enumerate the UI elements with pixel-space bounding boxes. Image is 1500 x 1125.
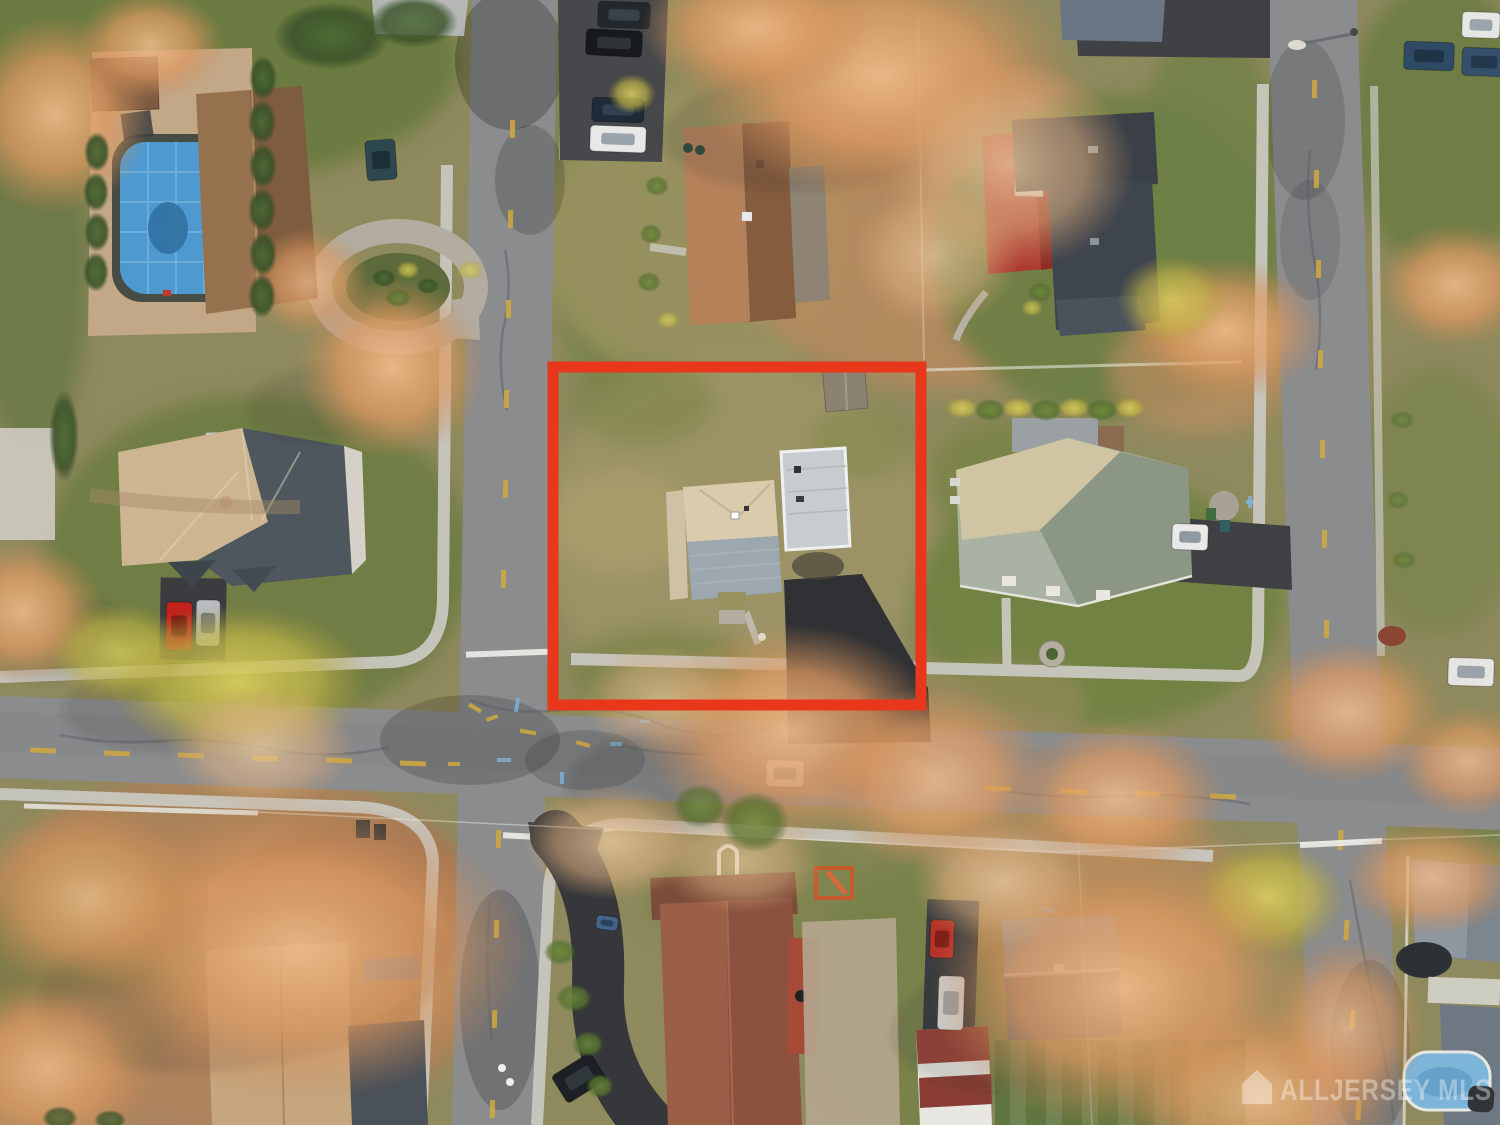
- yellow-road-marking: [503, 480, 508, 498]
- yellow-road-marking: [496, 830, 501, 848]
- tree-canopy: [1392, 551, 1416, 569]
- tree-canopy: [84, 212, 110, 252]
- yellow-road-marking: [1316, 260, 1321, 278]
- chimney: [731, 512, 739, 519]
- tree-canopy: [456, 260, 484, 280]
- mailbox: [498, 1064, 506, 1072]
- tree-canopy: [1114, 397, 1146, 419]
- tree-canopy: [645, 176, 669, 196]
- tree-canopy: [1021, 299, 1043, 317]
- neighbor-patio-left-edge: [0, 428, 55, 540]
- suv-dark-green-glass: [371, 151, 390, 170]
- suv-dark-green: [365, 139, 398, 181]
- tree-canopy: [84, 132, 110, 172]
- van-dark-glass: [608, 9, 640, 22]
- street-lamp-head: [1288, 40, 1306, 50]
- roof-vent: [744, 506, 749, 511]
- green-bin: [1206, 508, 1216, 520]
- neighbor-roof-partial: [1060, 0, 1165, 42]
- tree-canopy: [1390, 411, 1414, 429]
- tree-canopy: [248, 188, 276, 232]
- yellow-road-marking: [510, 120, 515, 138]
- aerial-photo: ALLJERSEY MLS: [0, 0, 1500, 1125]
- tree-canopy: [248, 274, 276, 318]
- car-black-glass: [597, 36, 631, 49]
- utility-pole: [1350, 28, 1358, 36]
- tree-canopy: [417, 278, 439, 294]
- car-black: [585, 29, 642, 58]
- tree-canopy: [1057, 397, 1091, 419]
- tree-canopy: [637, 272, 661, 292]
- truck-blue-1: [1404, 41, 1455, 71]
- tree-canopy: [385, 289, 411, 307]
- ground-patch: [570, 360, 714, 444]
- tree-canopy: [656, 311, 680, 329]
- tree-canopy: [640, 224, 662, 244]
- tree-canopy: [49, 390, 79, 482]
- tree-canopy: [586, 1074, 614, 1098]
- green-bin: [1220, 520, 1230, 532]
- tree-canopy: [556, 984, 592, 1012]
- yellow-road-marking: [490, 1100, 495, 1118]
- car-white-right-edge: [1448, 657, 1495, 687]
- rooftop-hvac: [742, 212, 752, 221]
- car-white-driveway-glass: [1179, 531, 1201, 543]
- white-flat-roof-addition: [781, 448, 850, 550]
- tree-canopy: [372, 269, 396, 287]
- yellow-road-marking: [501, 570, 506, 588]
- front-walk-right-center: [1006, 598, 1007, 668]
- hvac-unit: [950, 478, 960, 486]
- tree-canopy: [48, 602, 188, 702]
- tree-canopy: [1086, 399, 1118, 421]
- yellow-road-marking: [104, 751, 130, 757]
- yellow-road-marking: [1314, 170, 1319, 188]
- roof-sunlit-side: [660, 901, 730, 1125]
- car-white-glass: [601, 133, 635, 146]
- flat-roof-vent: [794, 466, 801, 473]
- pool-toy: [163, 290, 171, 296]
- truck-blue-1-glass: [1414, 49, 1444, 62]
- front-walk-top-center: [650, 247, 686, 252]
- porch-steps: [719, 610, 745, 624]
- blue-road-marking: [1248, 496, 1252, 508]
- tree-canopy: [910, 820, 1094, 944]
- car-blue-small: [595, 915, 619, 932]
- tree-canopy: [721, 792, 789, 852]
- blue-road-marking: [560, 772, 564, 784]
- dormer: [1046, 586, 1060, 596]
- yellow-road-marking: [30, 748, 56, 754]
- blue-road-marking: [497, 758, 511, 762]
- tree-canopy: [974, 399, 1006, 421]
- hvac-unit: [950, 496, 960, 504]
- tree-canopy: [249, 56, 277, 100]
- watermark-text: ALLJERSEY MLS: [1280, 1074, 1492, 1107]
- tree-canopy: [572, 1031, 604, 1057]
- tree-canopy: [850, 180, 1020, 330]
- yard-object: [506, 1078, 514, 1086]
- truck-blue-2: [1462, 47, 1500, 77]
- car-white-right-edge-glass: [1457, 665, 1485, 678]
- tree-canopy: [1117, 255, 1227, 345]
- yellow-road-marking: [506, 300, 511, 318]
- tree-canopy: [274, 2, 390, 70]
- dormer: [1002, 576, 1016, 586]
- yellow-road-marking: [1324, 620, 1329, 638]
- tree-canopy: [83, 172, 109, 212]
- stone-circle-planting: [1046, 648, 1058, 660]
- tree-canopy: [249, 144, 277, 188]
- yellow-road-marking: [1322, 530, 1327, 548]
- tree-canopy: [248, 100, 276, 144]
- tree-canopy: [1028, 282, 1052, 302]
- tree-canopy: [544, 939, 576, 965]
- tree-canopy: [674, 784, 726, 828]
- tree-canopy: [1001, 397, 1035, 419]
- tree-canopy: [608, 74, 656, 114]
- tree-canopy: [249, 232, 277, 276]
- yellow-road-marking: [504, 390, 509, 408]
- featured-house-gray-roof: [687, 536, 782, 600]
- aerial-photo-canvas: ALLJERSEY MLS: [0, 0, 1500, 1125]
- yellow-road-marking: [448, 762, 460, 766]
- car-white-top-right: [1462, 11, 1500, 38]
- yellow-road-marking: [1320, 440, 1325, 458]
- dormer: [1096, 590, 1110, 600]
- tree-canopy: [83, 252, 109, 292]
- yellow-road-marking: [1312, 80, 1317, 98]
- flat-roof-vent: [796, 496, 804, 502]
- yellow-road-marking: [400, 761, 426, 767]
- tree-canopy: [1387, 491, 1409, 509]
- pool-cover-water-patch: [148, 202, 188, 254]
- red-flower-bed: [1378, 626, 1406, 646]
- car-white-top-right-glass: [1469, 19, 1492, 31]
- car-white: [590, 125, 647, 153]
- white-patio: [1428, 977, 1500, 1005]
- yellow-road-marking: [508, 210, 513, 228]
- tree-canopy: [396, 261, 420, 279]
- tree-canopy: [167, 686, 357, 810]
- watermark: ALLJERSEY MLS: [1242, 1070, 1492, 1107]
- tree-canopy: [1030, 399, 1062, 421]
- truck-blue-2-glass: [1471, 55, 1498, 68]
- shadow-bush: [792, 552, 844, 580]
- paver-patio: [802, 918, 900, 1125]
- tree-canopy: [945, 397, 979, 419]
- car-white-driveway: [1172, 523, 1209, 550]
